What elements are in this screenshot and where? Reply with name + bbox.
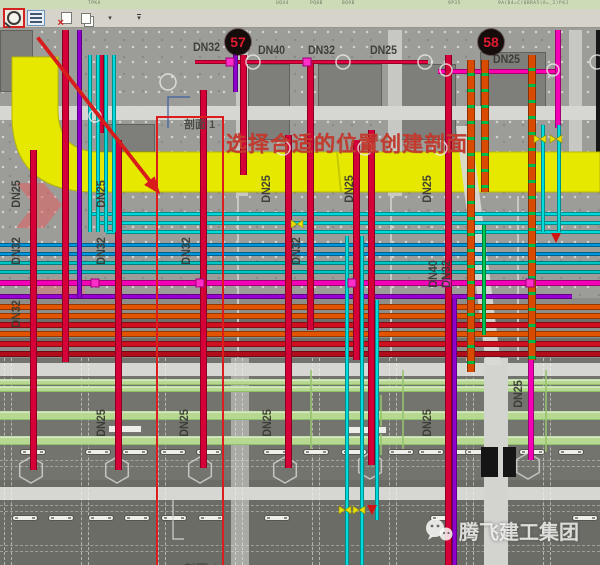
- light-fixture: [519, 449, 545, 455]
- pipe-size-label: DN25: [342, 169, 356, 209]
- pink-highlight-chevron: [16, 183, 62, 228]
- pipe-vertical: [375, 300, 379, 520]
- grid-strip: [237, 196, 239, 358]
- light-fixture: [465, 449, 491, 455]
- chevron-down-icon: ▾: [108, 14, 112, 22]
- pipe-vertical: [96, 55, 100, 232]
- pipe-size-label: DN25: [94, 403, 108, 443]
- pipe-horizontal: [0, 351, 600, 357]
- light-fixture: [122, 449, 148, 455]
- pipe-size-label: DN32: [289, 231, 303, 271]
- white-bar: [108, 425, 142, 433]
- grid-strip: [388, 30, 402, 196]
- red-symbols: [367, 233, 561, 515]
- green-grid-line: [545, 370, 547, 452]
- section-box[interactable]: [156, 116, 224, 565]
- pipe-vertical: [368, 130, 375, 465]
- light-fixture: [450, 449, 476, 455]
- light-fixture: [12, 515, 38, 521]
- pipe-size-label: DN25: [9, 174, 23, 214]
- corridor-band: [0, 106, 600, 120]
- grid-strip: [390, 196, 392, 358]
- light-fixture: [558, 449, 584, 455]
- pipe-vertical: [88, 55, 92, 232]
- callout-marker-58: 58: [478, 29, 504, 55]
- pipe-horizontal: [0, 304, 600, 310]
- light-fixture: [303, 449, 329, 455]
- pipe-vertical: [353, 140, 360, 360]
- labels-layer: DN32DN40DN32DN25DN25DN25DN25DN25DN25DN25…: [0, 28, 600, 565]
- revit-window: DN32DN40DN32DN25DN25DN25DN25DN25DN25DN25…: [0, 0, 600, 565]
- pipe-vertical: [97, 55, 104, 133]
- pipe-size-label: DN32: [9, 294, 23, 334]
- drawing-canvas[interactable]: DN32DN40DN32DN25DN25DN25DN25DN25DN25DN25…: [0, 28, 600, 565]
- pipe-size-label: DN40: [258, 43, 285, 57]
- pipe-size-label: DN32: [439, 254, 453, 294]
- pipe-vertical: [541, 125, 545, 232]
- pipe-vertical: [62, 30, 69, 362]
- pipe-horizontal: [0, 280, 600, 286]
- pipe-vertical: [30, 150, 37, 470]
- ribbon-fragment: UQ44: [276, 1, 289, 6]
- green-grid-line: [310, 370, 312, 455]
- pipe-horizontal: [0, 322, 600, 328]
- pipe-vertical: [528, 360, 534, 460]
- pipe-vertical: [467, 60, 475, 372]
- annotation-arrow-line: [38, 38, 150, 182]
- pipe-horizontal: [438, 69, 557, 74]
- corridor-band: [0, 363, 600, 376]
- viewport-edge: [596, 30, 600, 190]
- beam-panel: [480, 52, 546, 116]
- watermark: 腾飞建工集团: [424, 516, 579, 545]
- section-label-top: 剖面 1: [184, 116, 215, 132]
- fittings-layer: [0, 28, 600, 565]
- light-fixture: [48, 515, 74, 521]
- drawing-base-layer: [0, 28, 600, 565]
- light-fixture: [264, 515, 290, 521]
- light-fixture: [263, 449, 289, 455]
- pipe-size-label: DN25: [493, 52, 520, 66]
- light-fixture: [85, 449, 111, 455]
- valve-symbols: [291, 135, 562, 514]
- grid-strip: [517, 196, 519, 360]
- pipe-vertical: [557, 125, 561, 232]
- overflow-icon: ▾: [137, 14, 141, 22]
- light-fixture: [88, 515, 114, 521]
- green-grid-line: [402, 370, 404, 455]
- pipe-vertical: [482, 225, 486, 335]
- pipe-size-label: DN25: [420, 169, 434, 209]
- pipe-vertical: [345, 236, 349, 565]
- sheet-close-icon: [61, 12, 72, 24]
- toolbar-overflow-button[interactable]: ▾: [130, 10, 148, 26]
- dark-opening: [503, 447, 516, 477]
- beam-panel: [318, 64, 382, 118]
- beam-panel: [0, 30, 33, 92]
- pipe-size-label: DN25: [370, 43, 397, 57]
- pipes-layer: [0, 28, 600, 565]
- white-bar: [347, 426, 387, 434]
- view-toolbar: ▾ ▾: [0, 9, 600, 28]
- pipe-horizontal: [0, 252, 600, 256]
- sheets-icon: [81, 13, 91, 24]
- green-pipe-band: [0, 411, 600, 420]
- light-fixture: [124, 515, 150, 521]
- light-fixture: [341, 449, 367, 455]
- watermark-text: 腾飞建工集团: [459, 516, 579, 545]
- section-label-bottom: 剖面 1: [184, 560, 218, 565]
- pipe-size-label: DN32: [94, 231, 108, 271]
- ceiling-grid-line-v: [389, 358, 397, 565]
- ribbon-fragment: TPKA: [88, 1, 101, 6]
- slab-zone: [0, 358, 600, 482]
- ceiling-grid-line-v: [235, 358, 243, 565]
- pipe-vertical: [307, 62, 314, 330]
- pipe-horizontal: [0, 341, 600, 347]
- pipe-size-label: DN25: [420, 403, 434, 443]
- pipe-horizontal: [0, 243, 600, 247]
- ribbon-fragment: BQ9B: [342, 1, 355, 6]
- ceiling-grid-line-h: [0, 545, 600, 552]
- light-fixture: [388, 449, 414, 455]
- pipe-vertical: [115, 140, 122, 470]
- pipe-size-label: DN32: [193, 40, 220, 54]
- reveal-hidden-elements-button[interactable]: [5, 10, 23, 26]
- pipe-vertical: [77, 30, 82, 298]
- ceiling-grid-line-v: [312, 358, 320, 565]
- pipe-vertical: [285, 135, 292, 468]
- callout-marker-57: 57: [225, 29, 251, 55]
- pipe-horizontal: [0, 313, 600, 319]
- light-fixture: [20, 449, 46, 455]
- pipe-size-label: DN32: [9, 231, 23, 271]
- grid-strip: [231, 358, 249, 565]
- pipe-horizontal: [0, 261, 600, 265]
- pipe-size-label: DN25: [259, 169, 273, 209]
- ceiling-grid-line-v: [4, 358, 12, 565]
- slab-zone: [0, 318, 600, 323]
- duct-layer: [0, 28, 600, 565]
- pipe-size-label: DN32: [308, 43, 335, 57]
- column-hexagons: [20, 453, 540, 483]
- windows-dropdown-button[interactable]: ▾: [101, 10, 119, 26]
- switch-windows-button[interactable]: [79, 10, 97, 26]
- green-pipe-band: [0, 379, 600, 385]
- pipe-vertical: [528, 55, 536, 360]
- grid-strip: [569, 30, 582, 188]
- annotation-tip-text: 选择合适的位置创建剖面: [226, 128, 468, 158]
- ribbon-fragment: PQ8B: [310, 1, 323, 6]
- corridor-band: [0, 487, 600, 500]
- ceiling-grid-line-v: [81, 358, 89, 565]
- pipe-vertical: [481, 60, 489, 192]
- slab-zone: [0, 298, 600, 360]
- pipe-size-label: DN40: [426, 254, 440, 294]
- pipe-size-label: DN25: [260, 403, 274, 443]
- diagonal-ramp-strip: [456, 126, 501, 365]
- beam-panel: [97, 124, 155, 152]
- visibility-list-icon: [30, 13, 42, 23]
- green-grid-line: [380, 395, 382, 455]
- pipe-vertical: [112, 55, 116, 232]
- ribbon-fragment: 9P35: [448, 1, 461, 6]
- pipe-vertical: [360, 236, 364, 565]
- ribbon-fragment: 9A(D4=C(QBRA5(A=_2)P4J: [498, 1, 569, 6]
- light-fixture: [418, 449, 444, 455]
- pipe-vertical: [104, 55, 108, 232]
- pipe-horizontal: [0, 294, 572, 299]
- pink-highlight-patch: [33, 279, 85, 299]
- dark-opening: [481, 447, 498, 477]
- annotation-arrow-layer: [0, 28, 600, 565]
- yellow-duct: [12, 57, 600, 192]
- slab-zone: [0, 338, 600, 343]
- pipe-horizontal: [0, 270, 600, 274]
- ceiling-grid-line-h: [0, 505, 600, 512]
- ceiling-grid-line-h: [0, 460, 600, 467]
- pipe-size-label: DN25: [94, 174, 108, 214]
- pipe-size-label: DN25: [511, 374, 525, 414]
- close-hidden-windows-button[interactable]: [57, 10, 75, 26]
- wechat-icon: [424, 518, 454, 544]
- duct-reducer-seam: [337, 152, 341, 192]
- visibility-graphics-button[interactable]: [27, 10, 45, 26]
- pipe-horizontal: [0, 331, 600, 337]
- green-pipe-band: [0, 436, 600, 445]
- green-pipe-band: [0, 386, 600, 392]
- pipe-horizontal: [195, 60, 428, 64]
- lightbulb-icon: [7, 11, 21, 25]
- pipe-vertical: [555, 30, 561, 128]
